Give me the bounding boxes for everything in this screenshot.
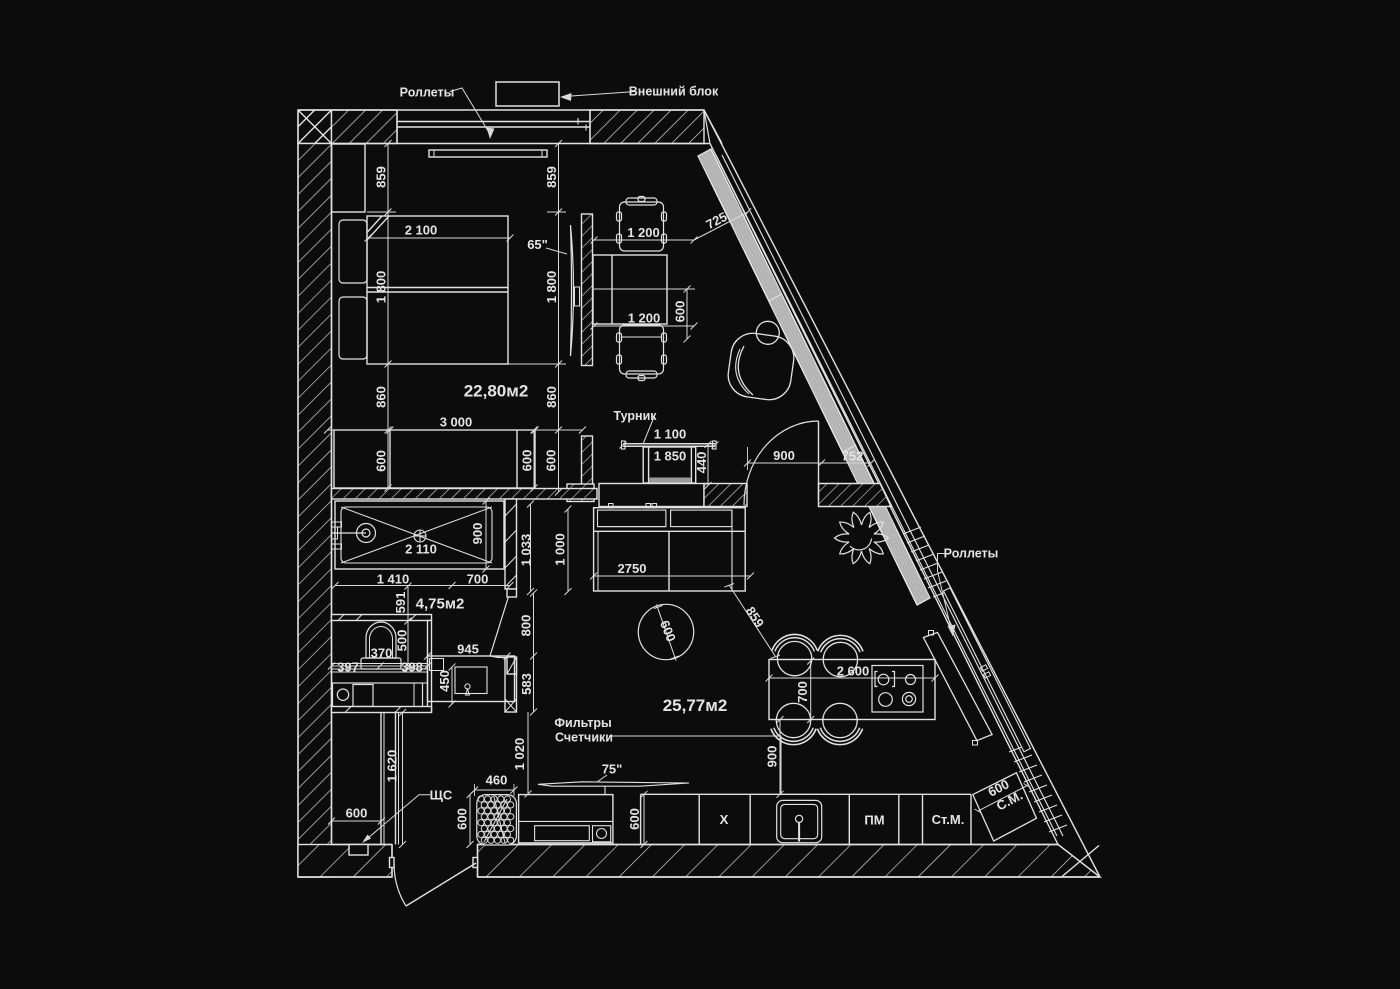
svg-text:1 200: 1 200 [628,311,661,326]
svg-text:1 200: 1 200 [627,225,660,240]
svg-text:1 033: 1 033 [519,534,534,567]
svg-text:800: 800 [519,615,534,637]
svg-text:65": 65" [527,237,548,252]
svg-text:1 000: 1 000 [553,533,568,566]
svg-text:500: 500 [395,630,410,652]
svg-text:ПМ: ПМ [864,813,884,828]
svg-text:2 100: 2 100 [405,223,438,238]
svg-text:ЩС: ЩС [430,788,453,803]
svg-text:1 020: 1 020 [512,738,527,771]
svg-text:1 620: 1 620 [385,750,400,783]
svg-text:900: 900 [773,448,795,463]
svg-text:398: 398 [401,660,423,675]
svg-text:Ст.М.: Ст.М. [932,812,965,827]
svg-text:600: 600 [455,808,470,830]
svg-text:Фильтры: Фильтры [554,716,611,730]
svg-text:900: 900 [470,523,485,545]
svg-text:Счетчики: Счетчики [555,731,613,745]
svg-text:4,75м2: 4,75м2 [416,596,465,613]
svg-text:Роллеты: Роллеты [400,86,455,100]
svg-text:859: 859 [374,166,389,188]
svg-text:22,80м2: 22,80м2 [464,382,529,401]
svg-text:600: 600 [673,301,688,323]
svg-text:Внешний блок: Внешний блок [629,85,719,99]
svg-text:860: 860 [374,386,389,408]
svg-text:450: 450 [437,670,452,692]
svg-text:700: 700 [467,572,489,587]
svg-text:2 600: 2 600 [837,664,870,679]
svg-text:600: 600 [627,808,642,830]
svg-text:2 110: 2 110 [405,542,437,557]
svg-text:Турник: Турник [613,409,657,423]
svg-text:460: 460 [486,773,508,788]
svg-text:591: 591 [393,592,408,614]
svg-text:1 850: 1 850 [654,449,687,464]
svg-text:600: 600 [374,450,389,472]
svg-text:600: 600 [520,450,535,472]
svg-text:752: 752 [842,449,864,464]
svg-text:3 000: 3 000 [440,415,473,430]
svg-text:1 800: 1 800 [374,271,389,304]
svg-text:583: 583 [519,673,534,695]
svg-text:440: 440 [694,452,709,474]
svg-text:860: 860 [544,386,559,408]
svg-text:Х: Х [720,812,729,827]
svg-text:700: 700 [795,681,810,703]
svg-text:600: 600 [346,806,368,821]
svg-text:600: 600 [544,450,559,472]
svg-text:25,77м2: 25,77м2 [663,696,728,715]
svg-text:859: 859 [544,166,559,188]
svg-text:1 100: 1 100 [654,427,687,442]
svg-text:Роллеты: Роллеты [944,547,999,561]
svg-text:397: 397 [337,660,359,675]
svg-text:1 410: 1 410 [377,572,410,587]
svg-text:945: 945 [457,642,479,657]
svg-text:2750: 2750 [618,561,647,576]
svg-text:1 800: 1 800 [544,271,559,304]
svg-text:900: 900 [765,746,780,768]
svg-text:370: 370 [371,646,393,661]
svg-text:75": 75" [602,762,623,777]
